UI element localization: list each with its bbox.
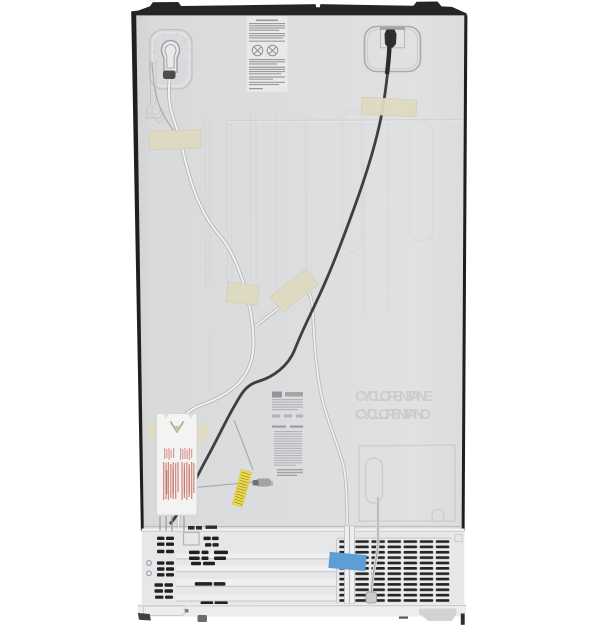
svg-text:CYCLOPENTANE: CYCLOPENTANE [355,389,433,405]
svg-text:CYCLOPENTANO: CYCLOPENTANO [355,407,431,423]
